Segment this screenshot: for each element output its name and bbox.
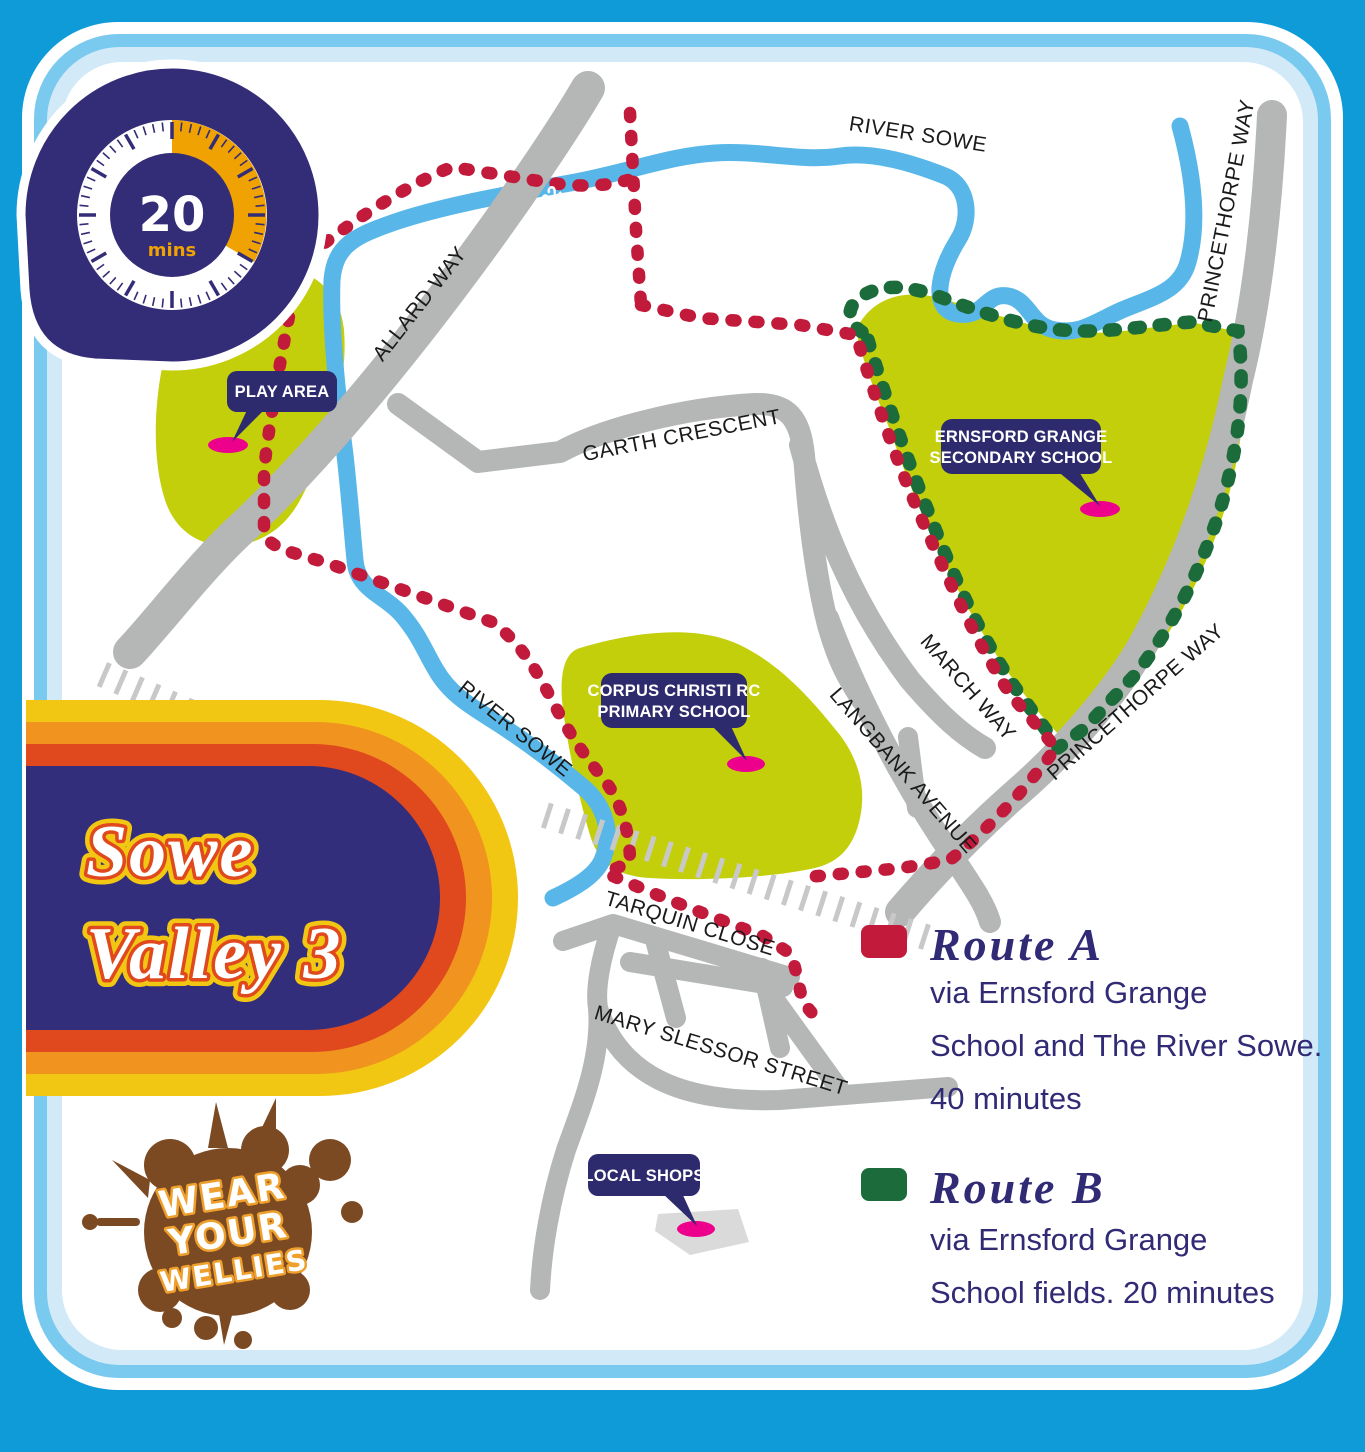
- route-b-desc-line2: School fields. 20 minutes: [930, 1275, 1275, 1310]
- secondary-school-label-line2: SECONDARY SCHOOL: [930, 449, 1113, 467]
- banner-line1: Sowe: [86, 811, 254, 893]
- secondary-school-label-line1: ERNSFORD GRANGE: [935, 428, 1108, 446]
- route-a-title: Route A: [929, 919, 1104, 970]
- title-banner: Sowe Sowe Valley 3 Valley 3: [26, 700, 518, 1096]
- play-area-marker: [208, 437, 248, 453]
- route-b-title: Route B: [929, 1162, 1106, 1213]
- map-canvas: PLAY AREA ERNSFORD GRANGE SECONDARY SCHO…: [0, 0, 1365, 1452]
- sowe-valley-map-poster: PLAY AREA ERNSFORD GRANGE SECONDARY SCHO…: [0, 0, 1365, 1452]
- route-a-swatch: [861, 925, 907, 958]
- timer-unit: mins: [148, 240, 196, 261]
- local-shops-label: LOCAL SHOPS: [583, 1167, 704, 1185]
- route-a-desc-line3: 40 minutes: [930, 1081, 1082, 1116]
- play-area-label: PLAY AREA: [235, 383, 330, 401]
- timer-badge: 20 mins: [21, 64, 323, 366]
- local-shops-marker: [677, 1221, 715, 1237]
- corpus-christi-marker: [727, 756, 765, 772]
- secondary-school-marker: [1080, 501, 1120, 517]
- corpus-christi-label-line2: PRIMARY SCHOOL: [597, 703, 750, 721]
- banner-line2: Valley 3: [86, 913, 342, 995]
- route-a-desc-line2: School and The River Sowe.: [930, 1028, 1322, 1063]
- corpus-christi-label-line1: CORPUS CHRISTI RC: [588, 682, 761, 700]
- route-b-swatch: [861, 1168, 907, 1201]
- route-b-desc-line1: via Ernsford Grange: [930, 1222, 1207, 1257]
- route-a-desc-line1: via Ernsford Grange: [930, 975, 1207, 1010]
- timer-value: 20: [139, 187, 206, 243]
